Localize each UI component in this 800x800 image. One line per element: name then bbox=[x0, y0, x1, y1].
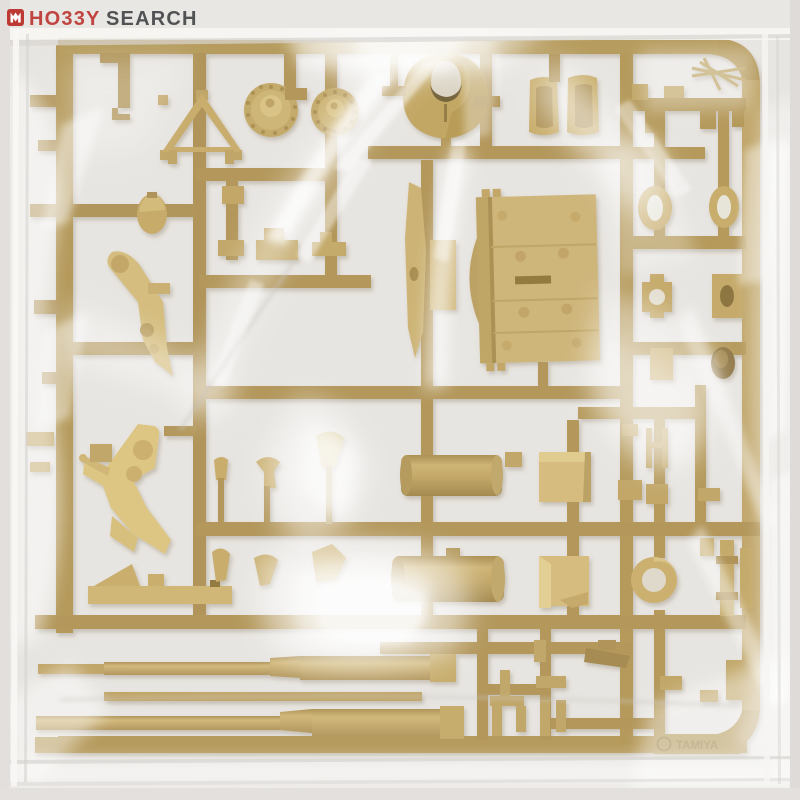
svg-text:SEARCH: SEARCH bbox=[106, 8, 198, 30]
svg-text:HO33Y: HO33Y bbox=[29, 8, 101, 30]
